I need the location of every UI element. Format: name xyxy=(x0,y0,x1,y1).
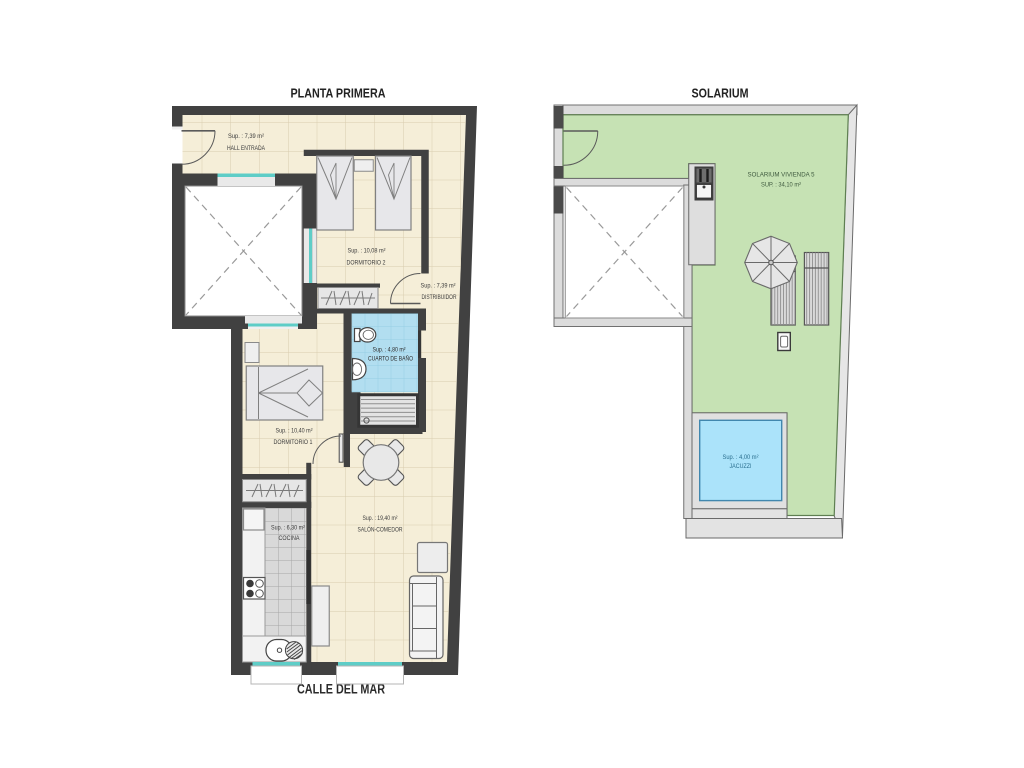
svg-text:Sup. : 4,80 m²: Sup. : 4,80 m² xyxy=(373,347,406,354)
svg-text:SOLARIUM VIVIENDA 5: SOLARIUM VIVIENDA 5 xyxy=(748,172,815,179)
svg-text:SALÓN-COMEDOR: SALÓN-COMEDOR xyxy=(358,527,403,534)
svg-text:Sup. : 4,00 m²: Sup. : 4,00 m² xyxy=(723,454,759,461)
svg-text:Sup. : 19,40 m²: Sup. : 19,40 m² xyxy=(363,515,398,522)
svg-text:Sup. : 6,30 m²: Sup. : 6,30 m² xyxy=(271,525,305,532)
svg-text:JACUZZI: JACUZZI xyxy=(730,463,752,470)
svg-text:DORMITORIO 1: DORMITORIO 1 xyxy=(274,439,313,446)
svg-text:DORMITORIO 2: DORMITORIO 2 xyxy=(347,260,386,267)
svg-text:Sup. : 10,08 m²: Sup. : 10,08 m² xyxy=(348,248,386,255)
svg-text:DISTRIBUIDOR: DISTRIBUIDOR xyxy=(422,294,457,301)
svg-text:Sup. : 7,39 m²: Sup. : 7,39 m² xyxy=(228,133,264,140)
svg-text:HALL ENTRADA: HALL ENTRADA xyxy=(227,145,266,152)
svg-text:CUARTO DE BAÑO: CUARTO DE BAÑO xyxy=(368,356,413,363)
svg-text:PLANTA PRIMERA: PLANTA PRIMERA xyxy=(291,86,386,101)
svg-text:Sup. : 10,40 m²: Sup. : 10,40 m² xyxy=(276,428,313,435)
svg-text:Sup. : 7,39 m²: Sup. : 7,39 m² xyxy=(421,283,456,290)
svg-text:SOLARIUM: SOLARIUM xyxy=(692,86,749,101)
svg-text:SUP. : 34,10 m²: SUP. : 34,10 m² xyxy=(761,182,801,189)
svg-text:COCINA: COCINA xyxy=(279,535,301,542)
